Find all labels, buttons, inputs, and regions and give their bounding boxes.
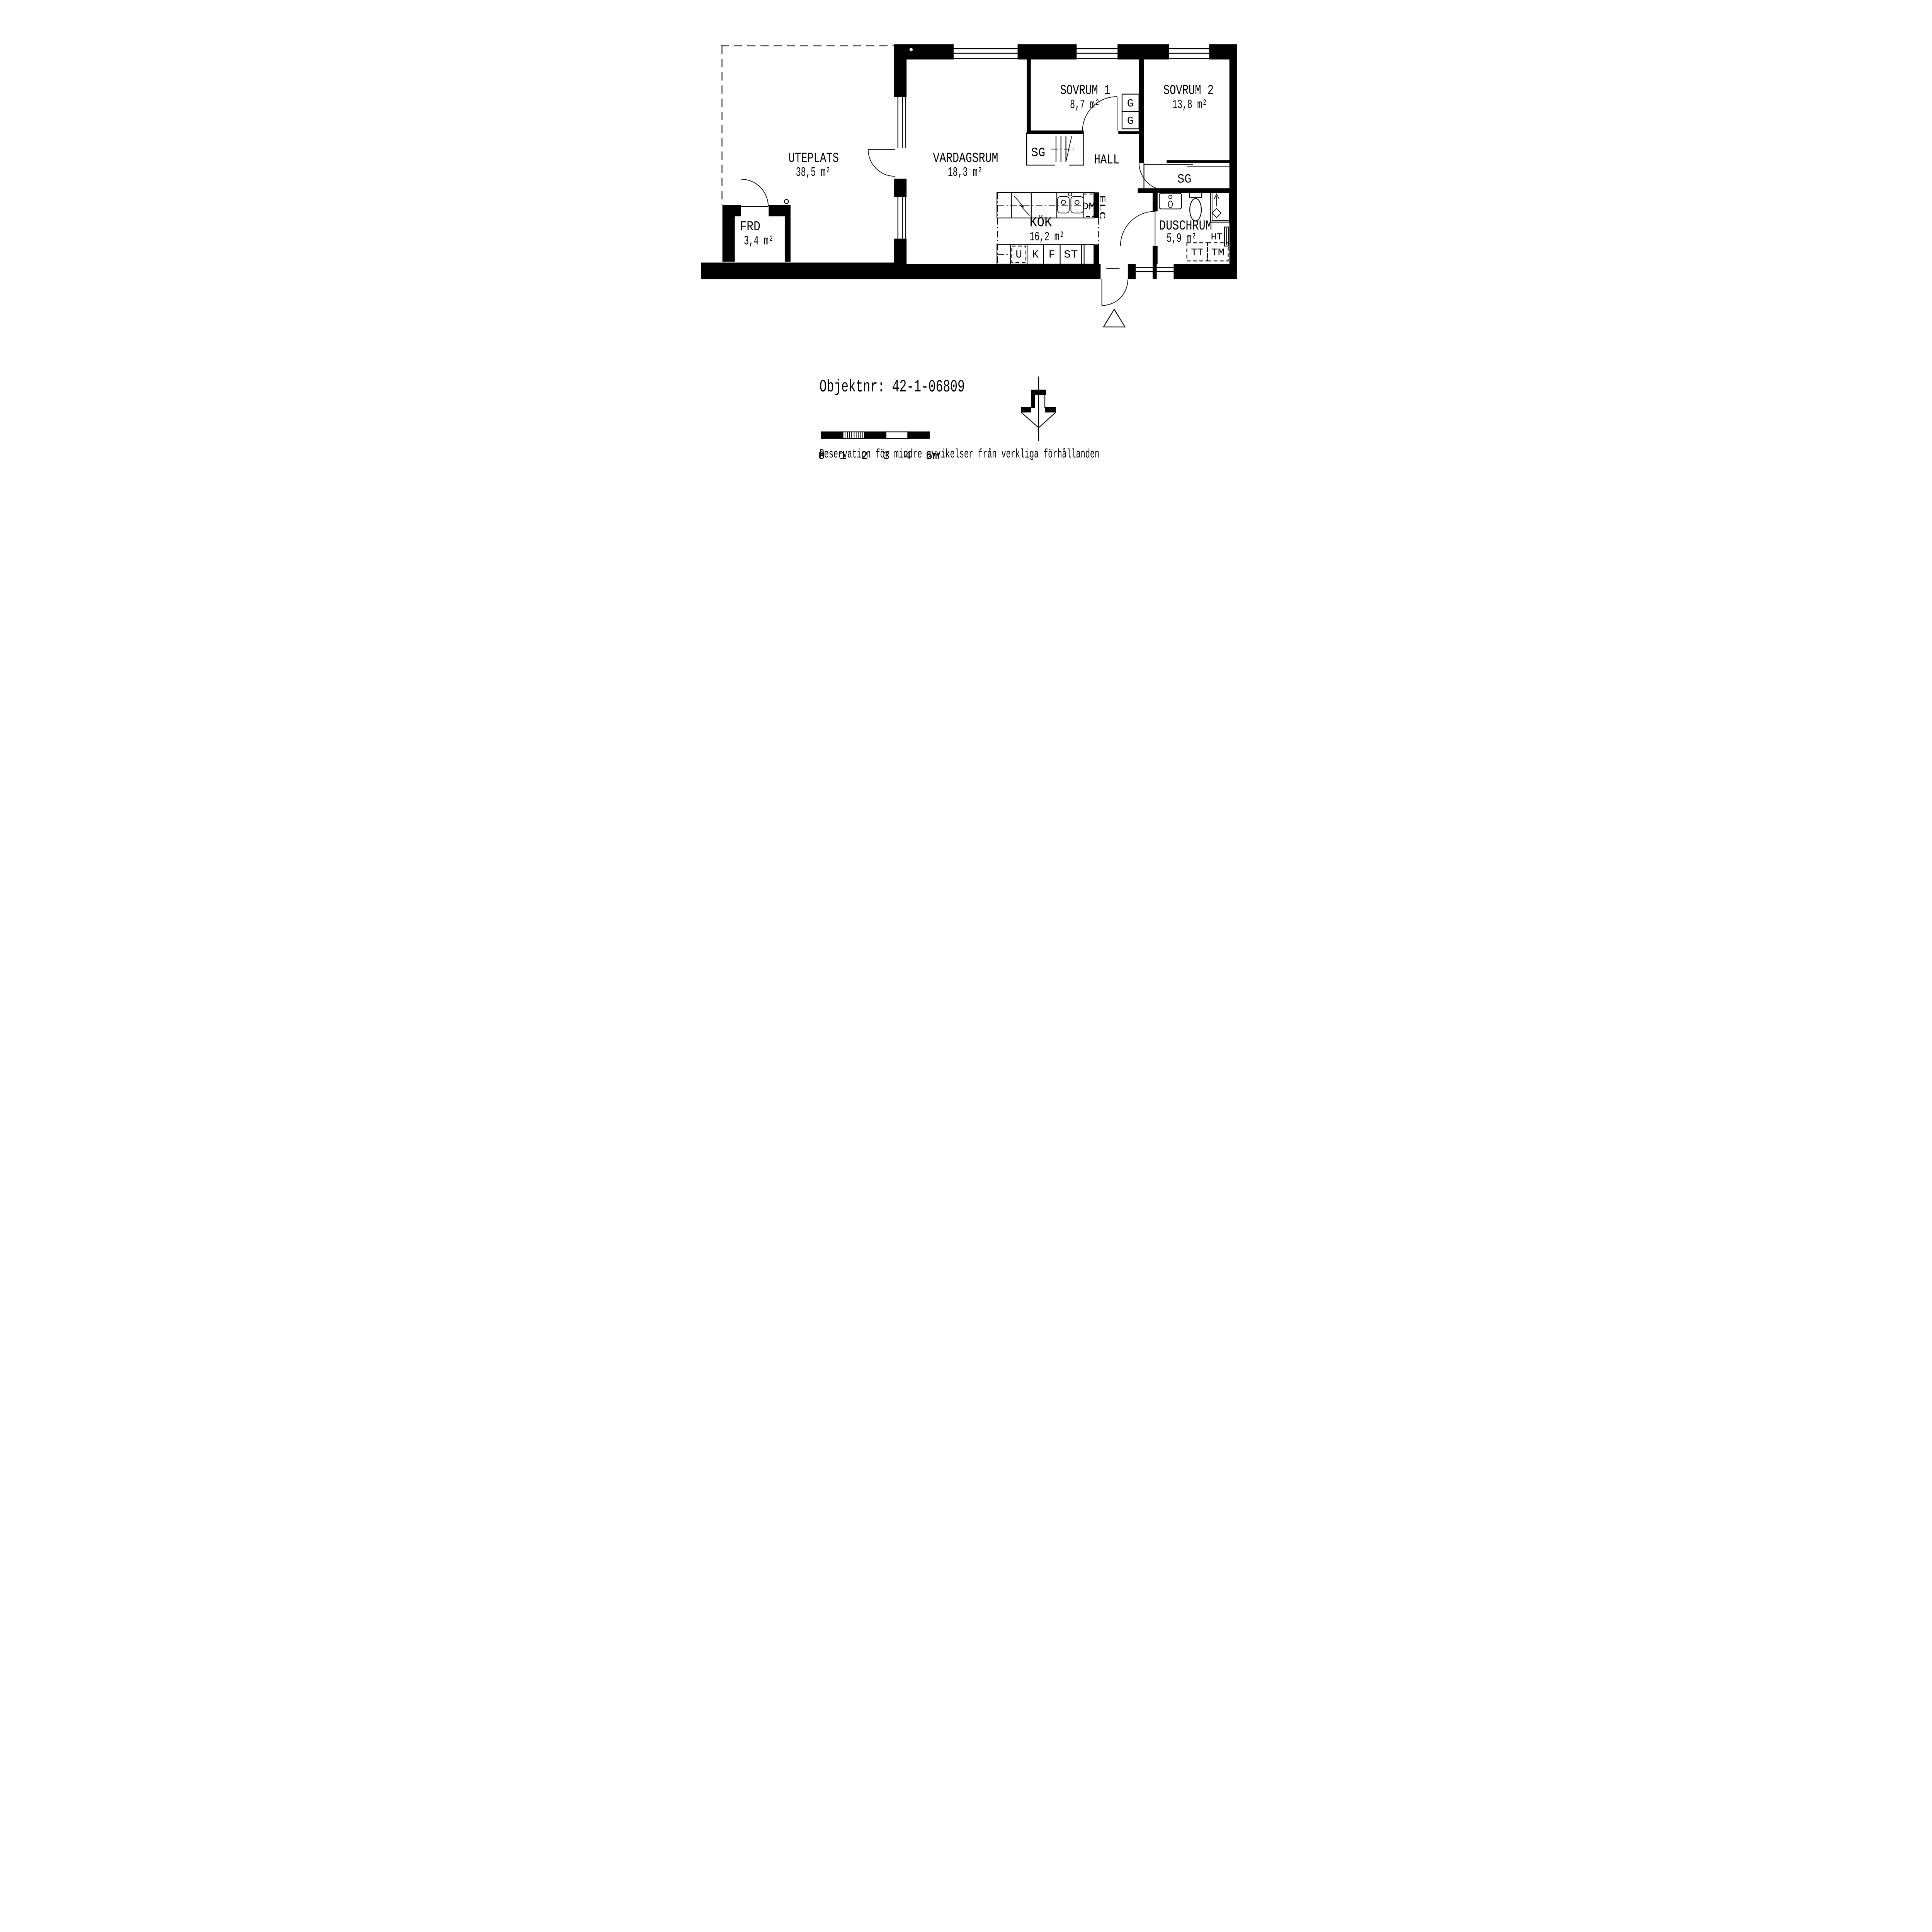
window-duschrum-bottom — [1157, 267, 1174, 272]
label-hall: HALL — [1094, 152, 1119, 168]
scale-bar-hatch — [845, 432, 863, 439]
kitchen-sink-icon — [1058, 193, 1083, 213]
label-vardagsrum: VARDAGSRUM — [933, 151, 998, 166]
label-f: F — [1049, 249, 1055, 261]
window-left-upper — [898, 97, 906, 148]
label-frd: FRD — [740, 219, 760, 235]
label-uteplats-area: 38,5 m² — [796, 165, 831, 180]
window-left-lower — [898, 197, 906, 239]
shower-icon — [1211, 192, 1230, 222]
entrance-triangle-icon — [1104, 309, 1125, 327]
label-uteplats: UTEPLATS — [789, 151, 839, 166]
label-tt: TT — [1191, 247, 1203, 258]
label-dm: DM — [1082, 201, 1095, 213]
floorplan-page: UTEPLATS 38,5 m² VARDAGSRUM 18,3 m² SOVR… — [665, 0, 1267, 578]
door-balcony — [868, 150, 895, 176]
label-sovrum2-area: 13,8 m² — [1172, 97, 1207, 112]
label-sovrum1-area: 8,7 m² — [1070, 97, 1100, 112]
label-sovrum2: SOVRUM 2 — [1163, 83, 1214, 99]
door-frd — [741, 179, 769, 207]
label-kok-area: 16,2 m² — [1030, 230, 1065, 244]
label-elc: ELC — [1097, 195, 1107, 219]
label-g2: G — [1127, 116, 1134, 128]
window-sovrum1-top — [1077, 49, 1117, 59]
label-st: ST — [1064, 249, 1078, 261]
window-sovrum2-top — [1169, 49, 1209, 59]
disclaimer-text: Reservation för mindre avvikelser från v… — [820, 447, 1099, 461]
label-g1: G — [1127, 98, 1134, 110]
frd-post-icon — [784, 199, 789, 204]
label-duschrum-area: 5,9 m² — [1167, 231, 1196, 246]
corner-post-icon — [909, 48, 913, 52]
window-hall-bottom — [1136, 267, 1153, 272]
label-vardagsrum-area: 18,3 m² — [948, 165, 983, 180]
label-kok: KÖK — [1030, 215, 1052, 231]
door-duschrum — [1121, 211, 1155, 246]
label-sovrum1: SOVRUM 1 — [1060, 83, 1111, 99]
label-k: K — [1032, 249, 1039, 261]
floorplan-drawing: UTEPLATS 38,5 m² VARDAGSRUM 18,3 m² SOVR… — [665, 0, 1267, 578]
label-sg2: SG — [1177, 172, 1191, 186]
door-sovrum2 — [1139, 163, 1167, 190]
washbasin-icon — [1159, 193, 1182, 209]
toilet-icon — [1189, 192, 1202, 221]
label-sg1: SG — [1031, 146, 1045, 160]
north-arrow-icon — [1021, 376, 1056, 441]
label-tm: TM — [1211, 247, 1225, 258]
door-entrance — [1102, 269, 1128, 306]
label-u: U — [1015, 249, 1022, 261]
window-vardagsrum-top — [954, 49, 1018, 59]
label-ht: HT — [1211, 232, 1223, 243]
stove-icon — [1014, 196, 1030, 215]
patio-boundary — [721, 46, 894, 205]
object-number: Objektnr: 42-1-06809 — [820, 378, 965, 397]
label-frd-area: 3,4 m² — [744, 234, 774, 248]
